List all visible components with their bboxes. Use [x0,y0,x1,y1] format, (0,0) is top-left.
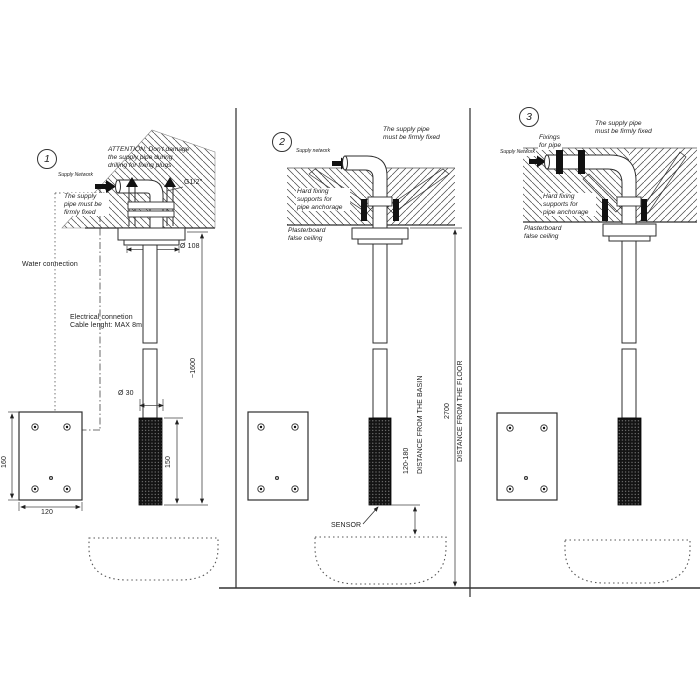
dimension-160 [8,412,19,500]
pipe-clamp [578,150,585,174]
ceiling-flange [118,228,185,240]
sensor-label: SENSOR [331,522,361,530]
supply-pipe-note: The supply pipe must be firmly fixed [595,120,667,136]
floor-distance-label: DISTANCE FROM THE FLOOR [457,360,465,462]
anchor-bolt [602,199,608,221]
pipe-coupler [617,197,641,206]
floor-distance-value: 2700 [444,403,452,419]
supply-network-label: Supply Network [499,150,536,156]
panel-1-drawing [8,130,218,580]
spout-diameter-label: Ø 30 [118,390,134,398]
supply-pipe-note: The supply pipe must be firmly fixed [63,193,109,216]
basin-outline [89,538,218,580]
spout-upper [143,245,157,343]
spout-lower [622,349,636,418]
drawing-linework [0,0,700,700]
sensor-body [369,418,391,505]
step-number-1: 1 [37,149,57,169]
anchor-bolt [361,199,367,221]
installation-diagram: 1 ATTENTION: Don't damage the supply pip… [0,0,700,700]
basin-distance-label: DISTANCE FROM THE BASIN [417,376,425,475]
pipe-open-end [343,156,348,170]
electrical-connection-label: Electrical connetion Cable lenght: MAX 8… [70,314,142,331]
sensor-leader-line [363,507,378,524]
flange-lip [609,236,650,241]
spout-lower [373,349,387,418]
water-connection-label: Water connection [22,261,78,269]
spout-lower [143,349,157,418]
step-number-2: 2 [272,132,292,152]
anchor-bolt [641,199,647,221]
mounting-plate [497,413,557,500]
hard-fixing-note: Hard fixing supports for pipe anchorage [542,193,596,216]
spout-upper [622,241,636,343]
supply-pipe-note: The supply pipe must be firmly fixed [383,126,455,142]
mounting-plate [19,412,82,500]
basin-distance-value: 120-180 [403,448,411,474]
pipe-open-end [116,180,121,193]
dimension-basin-distance [391,505,420,534]
sensor-body [618,418,641,505]
plate-height-label: 160 [1,456,9,468]
sensor-body [139,418,162,505]
supply-network-label: Supply Network [58,173,93,179]
ceiling-flange [603,224,656,236]
anchor-bolt [393,199,399,221]
pipe-coupler [128,211,174,217]
flange-diameter-label: Ø 108 [180,243,200,251]
pipe-coupler [128,202,174,209]
thread-size-label: G1/2" [184,179,202,187]
ceiling-flange [352,228,408,239]
height-dimension-label: ~1600 [190,358,198,378]
hard-fixing-note: Hard fixing supports for pipe anchorage [296,188,350,211]
pipe-clamp [556,150,563,174]
panel-3-drawing [497,148,697,583]
basin-outline [565,540,690,583]
spout-upper [373,244,387,343]
basin-outline [315,537,446,584]
flange-lip [124,240,179,245]
attention-note: ATTENTION: Don't damage the supply pipe … [108,146,204,169]
pipe-open-end [545,155,550,169]
flange-lip [358,239,402,244]
step-number-3: 3 [519,107,539,127]
sensor-length-label: 150 [165,456,173,468]
supply-network-label: Supply network [296,149,330,155]
mounting-plate [248,412,308,500]
pipe-coupler [368,197,392,206]
plasterboard-ceiling-label: Plasterboard false ceiling [524,225,574,241]
fixings-for-pipe-note: Fixings for pipe [538,134,562,150]
plate-width-label: 120 [41,509,53,517]
plasterboard-ceiling-label: Plasterboard false ceiling [288,227,338,243]
